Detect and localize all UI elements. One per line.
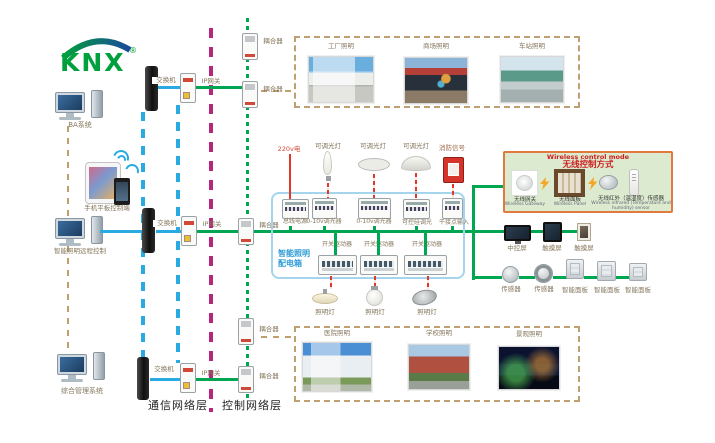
tower-icon: [91, 90, 103, 118]
ip-gateway-icon: [180, 363, 196, 393]
flat-ceiling-lamp-icon: [312, 293, 338, 304]
bus-stub: [424, 233, 427, 255]
coupler-icon: [242, 81, 258, 108]
lamp-line: [330, 276, 332, 289]
bus-branch-line: [616, 276, 630, 279]
bulb-lamp-icon: [366, 289, 383, 306]
bus-branch-line: [474, 185, 503, 188]
management-computer: [57, 354, 107, 384]
mall-lighting-photo: [404, 57, 468, 104]
rf-link-icon: [588, 177, 598, 190]
dimmer-0-10v-icon: [358, 198, 391, 219]
dimmable-lamp-label: 可调光灯: [358, 143, 388, 150]
coupler-icon: [238, 318, 254, 345]
tower-icon: [93, 352, 105, 380]
power-line: [289, 154, 291, 199]
ip-gateway-label: IP网关: [197, 78, 225, 85]
bus-branch-line: [562, 230, 577, 233]
communication-layer-label: 通信网络层: [148, 400, 208, 412]
touch-screen-icon: [577, 223, 591, 241]
cabinet-name-line1: 智能照明: [278, 250, 314, 259]
central-screen-icon: [504, 225, 531, 241]
wireless-th-sensor-icon: [629, 169, 639, 196]
device-label: 干接点输入: [436, 220, 472, 227]
wireless-device-label-en: humidity) sensor: [591, 207, 671, 212]
coupler-label: 耦合器: [259, 38, 287, 45]
smartphone-icon: [114, 178, 130, 205]
device-label: 0-10v调光器: [352, 219, 396, 226]
scene-label: 学校照明: [408, 330, 470, 337]
scene-label: 车站照明: [500, 43, 564, 50]
ip-gateway-label: IP网关: [198, 221, 226, 228]
triac-dimmer-icon: [403, 199, 430, 219]
ba-system-computer: [55, 92, 105, 122]
smart-panel-label: 智能面板: [561, 287, 589, 294]
bus-branch-line: [553, 276, 567, 279]
smart-panel-icon: [597, 261, 616, 281]
bus-stub: [373, 226, 376, 232]
bus-stub: [377, 233, 380, 255]
lamp-line: [327, 183, 329, 198]
wireless-gateway-icon: [511, 170, 538, 196]
smart-panel-icon: [566, 259, 584, 279]
bus-stub: [451, 226, 454, 232]
smart-panel-icon: [629, 263, 647, 281]
dimmable-lamp-label: 可调光灯: [313, 143, 343, 150]
touch-screen-label: 触摸屏: [572, 245, 596, 252]
lamp-line: [373, 174, 375, 198]
bus-branch-line: [584, 276, 598, 279]
scene-label: 景观照明: [498, 331, 560, 338]
knx-logo: KNX ®: [58, 36, 138, 80]
wireless-title-zh: 无线控制方式: [503, 161, 673, 170]
station-lighting-photo: [500, 56, 564, 103]
monitor-icon: [57, 354, 87, 375]
lamp-label: 照明灯: [360, 309, 390, 316]
central-screen-label: 中控屏: [503, 245, 531, 252]
device-label: 开关驱动器: [317, 242, 357, 249]
wireless-ir-sensor-icon: [599, 175, 618, 190]
scene-label: 商场照明: [404, 43, 468, 50]
sensor-icon: [534, 264, 553, 283]
switch-actuator-icon: [360, 255, 398, 275]
gateway-backbone-line: [176, 105, 180, 363]
bus-stub: [289, 226, 292, 232]
smart-panel-label: 智能面板: [624, 287, 652, 294]
smart-panel-label: 智能面板: [593, 287, 621, 294]
bus-branch-line: [474, 230, 505, 233]
bus-stub: [334, 233, 337, 255]
switch-label: 交换机: [153, 220, 181, 227]
coupler-icon: [242, 33, 258, 60]
connector-line: [100, 230, 142, 233]
connector-line: [150, 378, 181, 381]
dimmable-lamp-label: 可调光灯: [401, 143, 431, 150]
connector-line: [196, 86, 246, 89]
coupler-label: 耦合器: [255, 373, 283, 380]
lamp-line: [415, 173, 417, 199]
coupler-icon: [238, 366, 254, 393]
dimmer-0-10v-icon: [312, 198, 337, 219]
mains-label: 220v电: [276, 146, 302, 153]
switch-label: 交换机: [150, 366, 178, 373]
coupler-label: 耦合器: [259, 86, 287, 93]
ceiling-lamp-icon: [401, 156, 431, 171]
knx-bus-line: [197, 230, 239, 233]
bus-power-supply-icon: [282, 199, 309, 219]
landscape-lighting-photo: [498, 346, 560, 390]
device-label: 0-10v调光器: [302, 219, 346, 226]
fire-signal-line: [452, 184, 454, 198]
spot-lamp-icon: [411, 288, 439, 308]
knx-lighting-system-diagram: { "logo": {"text": "KNX", "registered": …: [0, 0, 715, 443]
downlight-icon: [358, 158, 390, 171]
coupler-icon: [238, 218, 254, 245]
connector-line: [261, 336, 294, 338]
candle-bulb-icon: [323, 151, 332, 175]
sensor-icon: [502, 266, 519, 283]
ethernet-switch-icon: [137, 357, 149, 400]
ethernet-switch-icon: [145, 66, 158, 111]
hospital-lighting-photo: [302, 342, 372, 392]
remote-control-computer: [55, 218, 105, 248]
factory-lighting-photo: [308, 56, 374, 103]
sensor-label: 传感器: [532, 286, 556, 293]
remote-control-label: 智能照明远程控制: [48, 248, 112, 255]
mobile-control-label: 手机平板控制端: [78, 205, 136, 212]
knx-bus-line: [196, 378, 239, 381]
ethernet-switch-icon: [142, 208, 155, 253]
ip-gateway-label: IP网关: [197, 370, 225, 377]
ba-system-label: BA系统: [55, 122, 105, 130]
monitor-icon: [55, 218, 85, 239]
rf-link-icon: [540, 177, 550, 190]
switch-label: 交换机: [152, 77, 180, 84]
touch-screen-icon: [543, 222, 562, 242]
control-layer-label: 控制网络层: [222, 400, 282, 412]
bus-stub: [323, 226, 326, 232]
fire-alarm-icon: [443, 157, 464, 183]
bus-branch-line: [531, 230, 543, 233]
dry-contact-input-icon: [442, 198, 463, 219]
device-label: 开关驱动器: [405, 242, 449, 249]
knx-logo-text: KNX: [60, 48, 126, 77]
sensor-label: 传感器: [499, 286, 523, 293]
coupler-label: 耦合器: [255, 326, 283, 333]
mobile-control-group: [85, 148, 137, 208]
touch-screen-label: 触摸屏: [540, 245, 564, 252]
ip-gateway-icon: [180, 73, 196, 103]
monitor-icon: [55, 92, 85, 113]
knx-registered-mark: ®: [129, 46, 137, 55]
switch-actuator-icon: [318, 255, 357, 275]
wireless-panel-icon: [554, 169, 585, 197]
school-lighting-photo: [408, 344, 470, 390]
wireless-device-label-en: Wireless Gateway: [499, 203, 551, 208]
lamp-label: 照明灯: [310, 309, 340, 316]
scene-label: 工厂照明: [308, 43, 374, 50]
cabinet-name-line2: 配电箱: [278, 260, 314, 269]
fire-signal-label: 消防信号: [437, 145, 467, 152]
wireless-device-label-en: Wireless Panel: [548, 203, 592, 208]
bus-branch-line: [474, 276, 502, 279]
ip-gateway-icon: [181, 216, 197, 246]
management-system-label: 综合管理系统: [57, 388, 107, 396]
lamp-line: [427, 276, 429, 289]
bus-branch-line: [519, 276, 535, 279]
bus-stub: [415, 226, 418, 232]
connector-line: [156, 230, 183, 233]
switch-actuator-icon: [404, 255, 447, 275]
lamp-label: 照明灯: [412, 309, 442, 316]
scene-label: 医院照明: [302, 330, 372, 337]
